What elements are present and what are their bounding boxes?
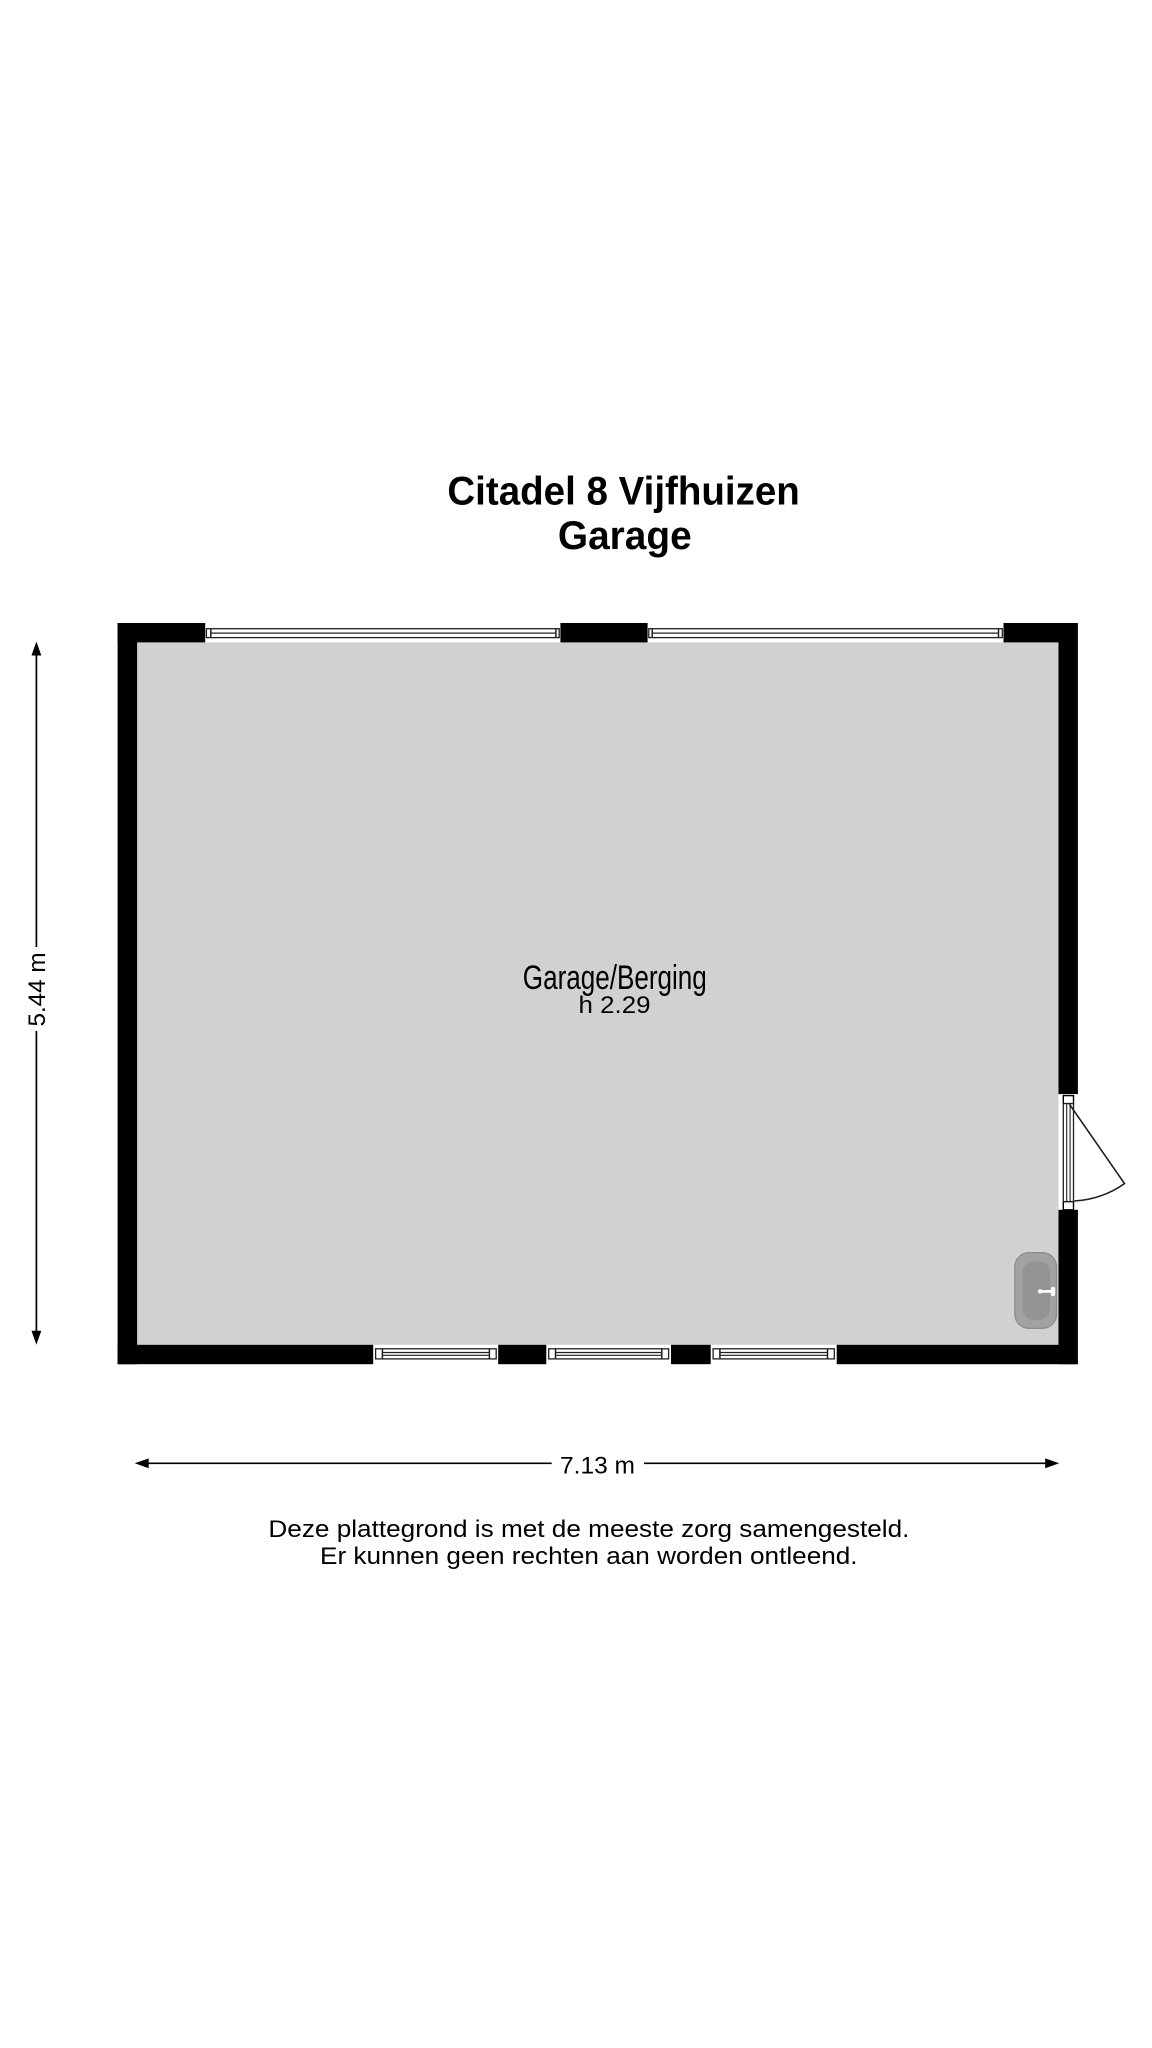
svg-text:h 2.29: h 2.29 (579, 992, 651, 1019)
svg-text:5.44 m: 5.44 m (24, 953, 51, 1027)
svg-text:Citadel 8 Vijfhuizen: Citadel 8 Vijfhuizen (447, 470, 800, 514)
svg-text:Er kunnen geen rechten aan wor: Er kunnen geen rechten aan worden ontlee… (320, 1543, 858, 1570)
svg-text:Garage: Garage (558, 514, 692, 558)
svg-text:Deze plattegrond is met de mee: Deze plattegrond is met de meeste zorg s… (268, 1516, 909, 1543)
svg-text:7.13 m: 7.13 m (560, 1453, 635, 1480)
